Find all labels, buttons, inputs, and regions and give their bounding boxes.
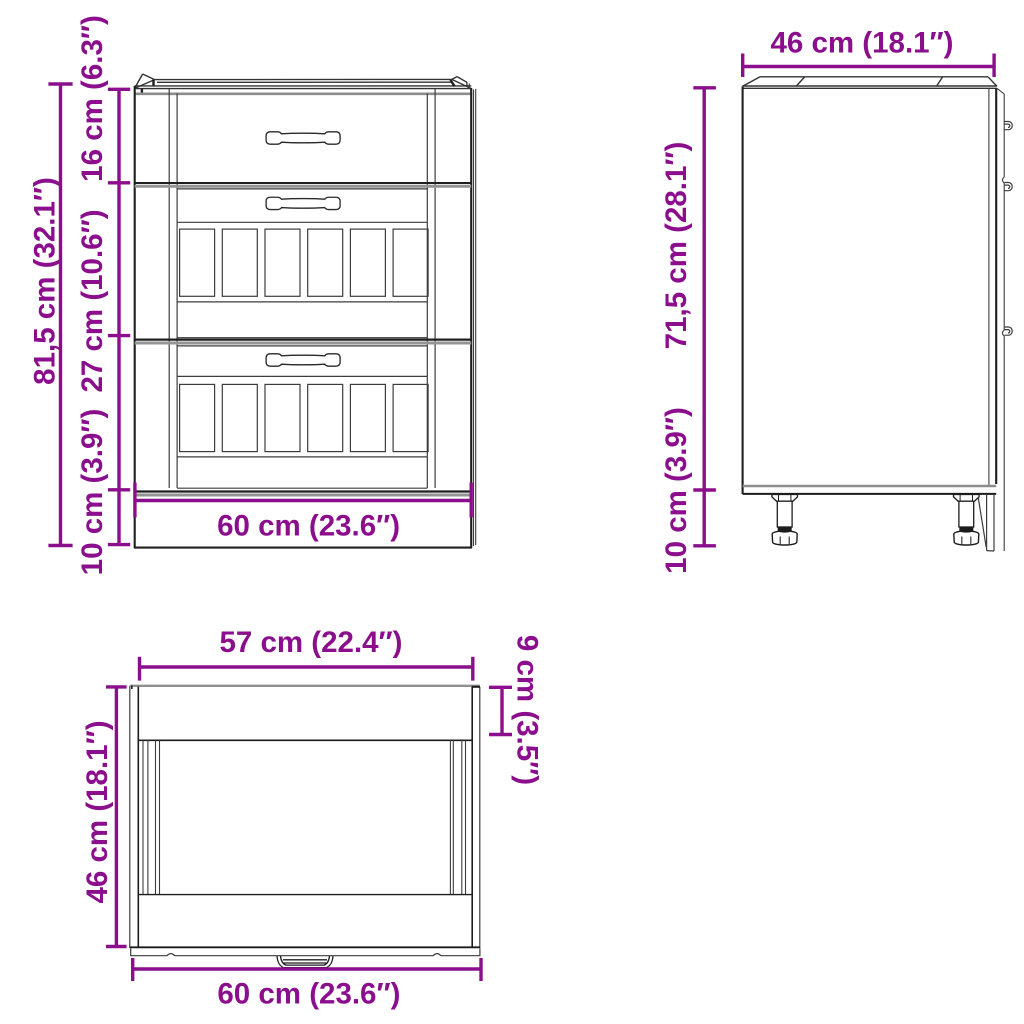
svg-text:60 cm (23.6″): 60 cm (23.6″) [217,509,400,542]
svg-text:10 cm (3.9″): 10 cm (3.9″) [76,409,109,576]
svg-text:71,5 cm (28.1″): 71,5 cm (28.1″) [660,142,693,350]
svg-text:57 cm (22.4″): 57 cm (22.4″) [219,626,402,659]
svg-text:16 cm (6.3″): 16 cm (6.3″) [76,15,109,182]
svg-text:46 cm (18.1″): 46 cm (18.1″) [770,27,953,60]
svg-text:60 cm (23.6″): 60 cm (23.6″) [217,978,400,1011]
svg-text:81,5 cm (32.1″): 81,5 cm (32.1″) [28,177,61,385]
svg-text:10 cm (3.9″): 10 cm (3.9″) [660,407,693,574]
svg-text:46 cm (18.1″): 46 cm (18.1″) [81,720,114,903]
svg-text:9 cm (3.5″): 9 cm (3.5″) [511,635,544,785]
svg-text:27 cm (10.6″): 27 cm (10.6″) [76,209,109,392]
